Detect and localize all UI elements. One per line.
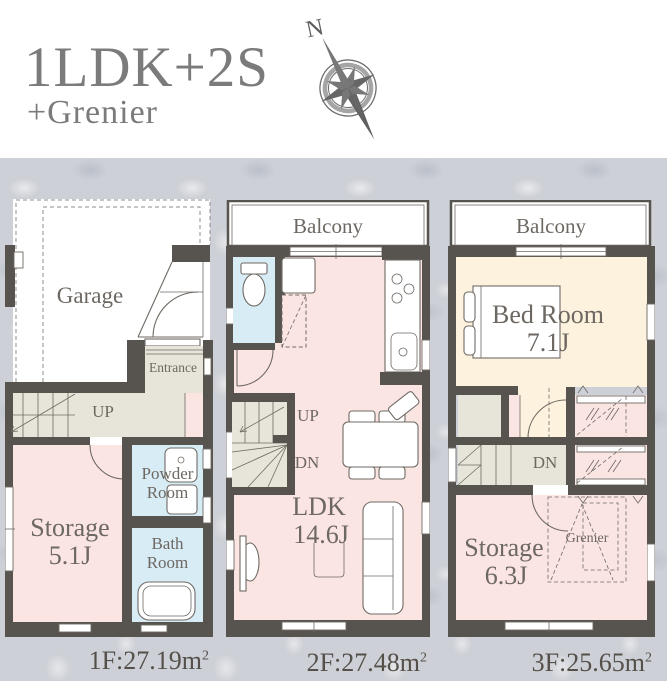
floor1-area-value: 1F:27.19 (89, 646, 182, 675)
floor-3-plan: Balcony Bed Room 7.1J DN Storage 6.3J Gr… (448, 200, 655, 637)
floor1-area-exponent: 2 (202, 648, 209, 663)
floor2-up-label: UP (290, 406, 326, 425)
floor3-area-value: 3F:25.65 (532, 648, 625, 677)
ldk-size-label: 14.6J (278, 520, 364, 549)
ldk-name-label: LDK (278, 492, 360, 521)
floor2-area-value: 2F:27.48 (307, 648, 400, 677)
floor1-storage-size: 5.1J (15, 541, 125, 570)
floor3-area-label: 3F:25.65m2 (448, 648, 652, 678)
page-subtitle: +Grenier (27, 96, 158, 130)
floor3-storage-name: Storage (456, 533, 552, 562)
floor3-area-exponent: 2 (645, 650, 652, 665)
floor-2-drawing (226, 200, 430, 637)
grenier-label: Grenier (548, 531, 626, 547)
floor2-area-unit: m (400, 648, 420, 677)
storage-door-gap (90, 437, 124, 445)
floor1-up-label: UP (83, 402, 123, 421)
floor1-area-label: 1F:27.19m2 (5, 646, 209, 676)
powder-bath-wall (132, 516, 203, 528)
floor2-area-exponent: 2 (420, 650, 427, 665)
floor3-balcony-label: Balcony (479, 215, 623, 239)
compass-icon: N (296, 10, 388, 140)
page-title: 1LDK+2S (24, 40, 269, 96)
floor3-area-unit: m (625, 648, 645, 677)
floor-2-plan: Balcony UP DN LDK 14.6J (226, 200, 430, 637)
floor2-dn-label: DN (289, 453, 325, 472)
floor3-storage-size: 6.3J (458, 561, 554, 590)
floor1-area-unit: m (182, 646, 202, 675)
floor2-area-label: 2F:27.48m2 (226, 648, 427, 678)
bedroom-size-label: 7.1J (478, 328, 618, 357)
floor1-storage-name: Storage (15, 513, 125, 542)
floor-1-plan: Garage Entrance UP Storage 5.1J Powder R… (5, 197, 213, 637)
entrance-label: Entrance (143, 360, 203, 375)
floor3-dn-label: DN (527, 453, 563, 472)
garage-label: Garage (40, 283, 140, 309)
bath-room-label: Bath Room (132, 534, 203, 572)
powder-room-label: Powder Room (132, 464, 203, 502)
bedroom-name-label: Bed Room (478, 300, 618, 329)
floor2-balcony-label: Balcony (256, 215, 400, 239)
compass-north-letter: N (304, 14, 326, 43)
floor2-stairs (232, 393, 295, 495)
page: { "header": { "title": "1LDK+2S", "subti… (0, 0, 667, 681)
